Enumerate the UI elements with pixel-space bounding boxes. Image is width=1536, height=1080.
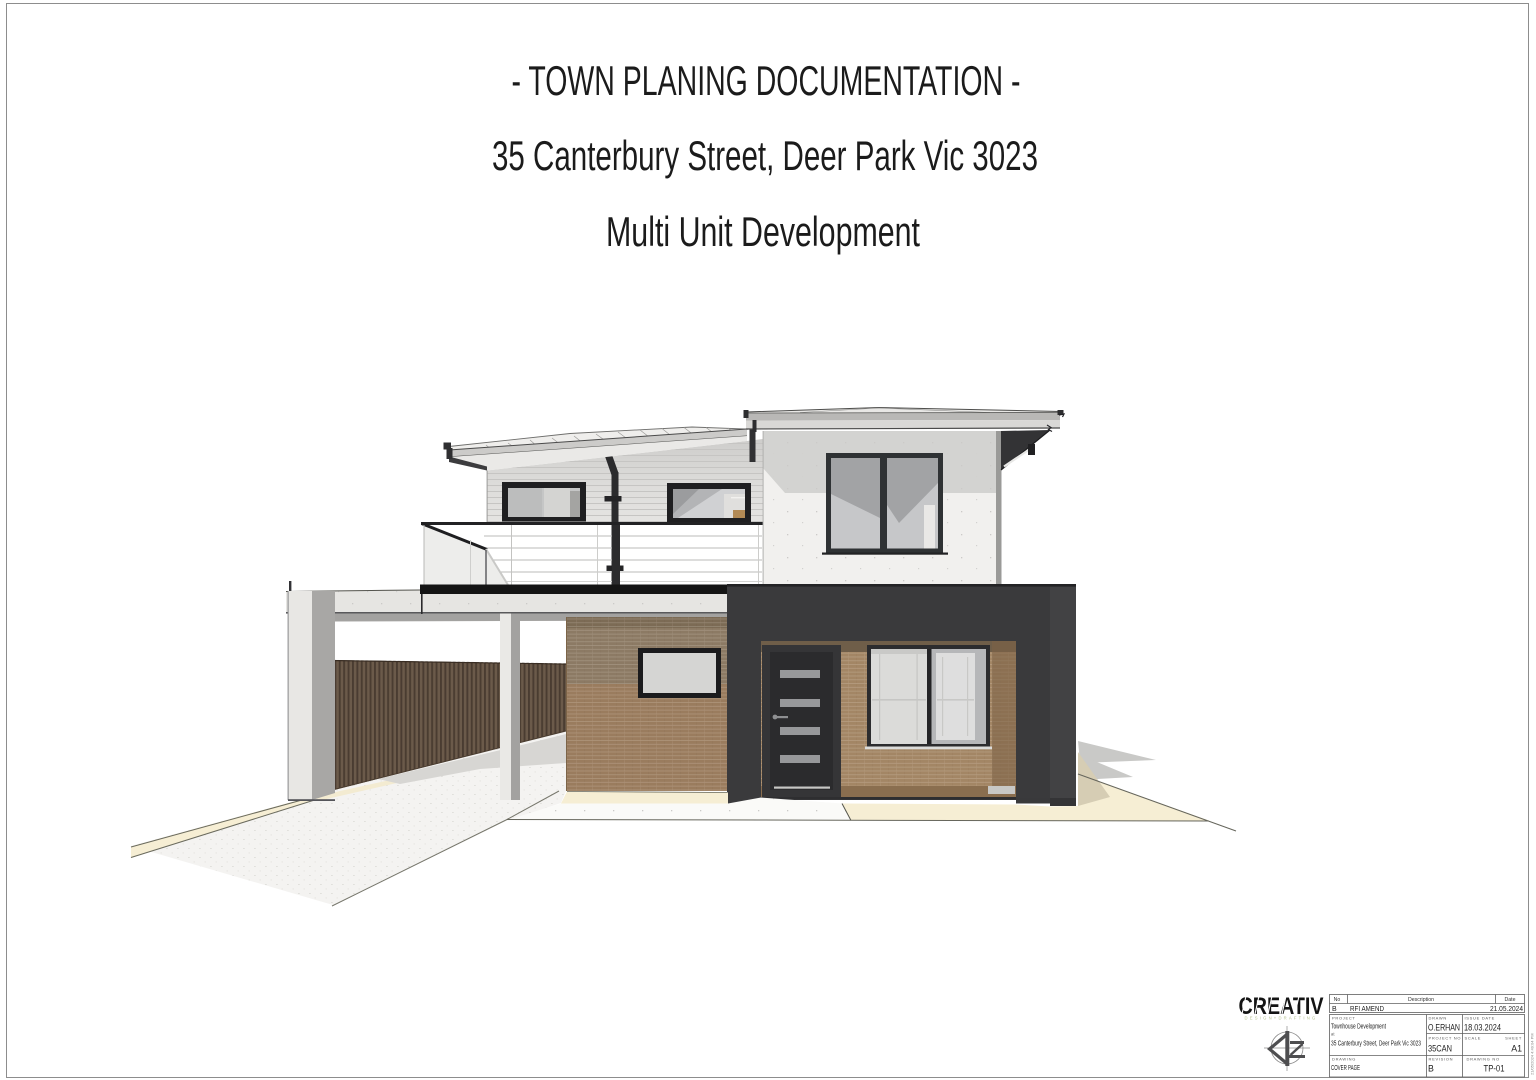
svg-text:Date: Date <box>1505 997 1516 1003</box>
svg-text:A1: A1 <box>1511 1044 1522 1054</box>
svg-text:DRAWING NO: DRAWING NO <box>1467 1057 1500 1062</box>
svg-text:Townhouse Development: Townhouse Development <box>1331 1022 1387 1031</box>
svg-text:21/05/2024 4:49:04 PM: 21/05/2024 4:49:04 PM <box>1530 1033 1535 1075</box>
svg-text:DRAWN: DRAWN <box>1429 1016 1447 1021</box>
svg-text:DRAWING: DRAWING <box>1332 1057 1356 1062</box>
svg-text:SHEET: SHEET <box>1505 1036 1522 1041</box>
svg-text:B: B <box>1428 1064 1434 1074</box>
svg-text:PROJECT: PROJECT <box>1332 1016 1356 1021</box>
svg-text:- TOWN PLANING DOCUMENTATION -: - TOWN PLANING DOCUMENTATION - <box>512 57 1021 104</box>
svg-text:SCALE: SCALE <box>1465 1036 1482 1041</box>
svg-text:B: B <box>1332 1006 1337 1013</box>
svg-text:DESIGN+DRAFTING: DESIGN+DRAFTING <box>1245 1016 1318 1021</box>
svg-text:O.ERHAN: O.ERHAN <box>1428 1023 1460 1033</box>
svg-text:PROJECT NO: PROJECT NO <box>1429 1036 1462 1041</box>
svg-text:35 Canterbury Street, Deer Par: 35 Canterbury Street, Deer Park Vic 3023 <box>1331 1039 1421 1048</box>
svg-text:REVISION: REVISION <box>1429 1057 1454 1062</box>
svg-text:RFI AMEND: RFI AMEND <box>1350 1006 1384 1013</box>
svg-text:ISSUE DATE: ISSUE DATE <box>1465 1016 1496 1021</box>
svg-text:No: No <box>1334 997 1341 1003</box>
svg-text:21.05.2024: 21.05.2024 <box>1490 1006 1523 1013</box>
svg-text:Multi Unit Development: Multi Unit Development <box>606 208 920 255</box>
svg-text:COVER PAGE: COVER PAGE <box>1331 1063 1360 1072</box>
svg-text:35 Canterbury Street, Deer Par: 35 Canterbury Street, Deer Park Vic 3023 <box>492 132 1038 179</box>
svg-text:35CAN: 35CAN <box>1428 1044 1452 1054</box>
svg-text:18.03.2024: 18.03.2024 <box>1464 1023 1501 1033</box>
svg-text:Description: Description <box>1408 997 1434 1003</box>
svg-text:TP-01: TP-01 <box>1484 1064 1505 1074</box>
